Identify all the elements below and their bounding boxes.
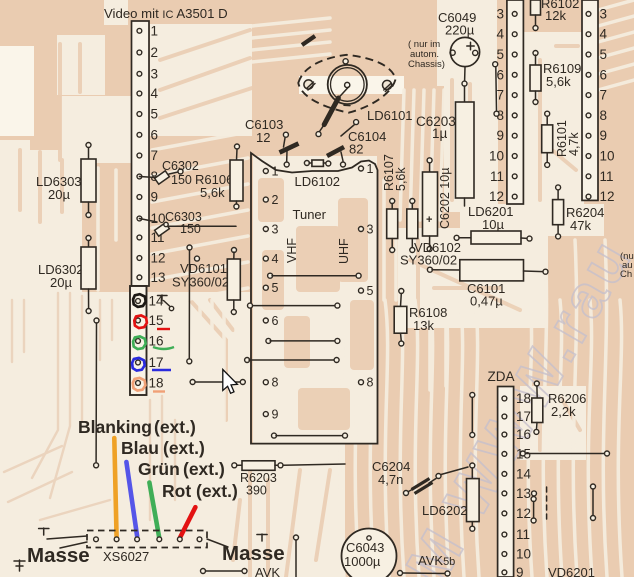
svg-text:18: 18 bbox=[516, 391, 531, 406]
svg-text:10: 10 bbox=[489, 149, 504, 164]
svg-text:SY360/02: SY360/02 bbox=[172, 275, 229, 290]
svg-text:3: 3 bbox=[272, 223, 279, 237]
svg-text:2: 2 bbox=[272, 193, 279, 207]
svg-text:3: 3 bbox=[367, 223, 374, 237]
svg-text:0,47µ: 0,47µ bbox=[470, 294, 503, 309]
svg-text:4: 4 bbox=[272, 252, 279, 266]
svg-text:Ch: Ch bbox=[620, 269, 632, 280]
svg-text:20µ: 20µ bbox=[50, 275, 72, 290]
svg-text:390: 390 bbox=[246, 484, 267, 498]
svg-text:13k: 13k bbox=[413, 318, 434, 333]
svg-text:ZDA: ZDA bbox=[488, 369, 515, 384]
svg-text:6: 6 bbox=[151, 127, 159, 142]
svg-text:9: 9 bbox=[600, 128, 608, 143]
svg-text:LD6202: LD6202 bbox=[422, 503, 468, 518]
svg-text:6: 6 bbox=[600, 67, 608, 82]
svg-text:13: 13 bbox=[151, 270, 166, 285]
svg-text:12: 12 bbox=[516, 506, 531, 521]
svg-text:3: 3 bbox=[496, 6, 504, 21]
svg-text:LD6102: LD6102 bbox=[295, 174, 341, 189]
svg-text:18: 18 bbox=[149, 376, 164, 391]
svg-text:11: 11 bbox=[600, 169, 614, 184]
svg-text:C6043: C6043 bbox=[346, 540, 384, 555]
svg-text:3: 3 bbox=[151, 66, 159, 81]
svg-text:Chassis): Chassis) bbox=[408, 59, 445, 70]
svg-text:Blanking: Blanking bbox=[78, 417, 152, 437]
svg-text:1µ: 1µ bbox=[432, 126, 448, 141]
svg-text:16: 16 bbox=[516, 427, 531, 442]
svg-text:4: 4 bbox=[151, 86, 159, 101]
svg-text:6: 6 bbox=[272, 314, 279, 328]
svg-text:20µ: 20µ bbox=[48, 187, 70, 202]
svg-text:3: 3 bbox=[600, 6, 608, 21]
svg-text:47k: 47k bbox=[570, 218, 591, 233]
svg-text:Grün: Grün bbox=[138, 459, 180, 479]
svg-text:Video mit IC A3501 D: Video mit IC A3501 D bbox=[104, 6, 228, 21]
svg-text:10: 10 bbox=[600, 149, 615, 164]
svg-text:10µ: 10µ bbox=[482, 217, 504, 232]
svg-text:11: 11 bbox=[516, 527, 530, 542]
svg-text:VD6201: VD6201 bbox=[548, 565, 595, 577]
svg-text:12: 12 bbox=[489, 189, 504, 204]
svg-text:9: 9 bbox=[496, 128, 504, 143]
svg-text:2,2k: 2,2k bbox=[551, 404, 576, 419]
svg-text:7: 7 bbox=[496, 88, 504, 103]
svg-text:13: 13 bbox=[516, 486, 531, 501]
svg-text:150: 150 bbox=[171, 173, 192, 187]
svg-text:5: 5 bbox=[272, 281, 279, 295]
svg-text:1000µ: 1000µ bbox=[344, 554, 381, 569]
svg-text:(ext.): (ext.) bbox=[163, 438, 205, 458]
svg-text:4,7k: 4,7k bbox=[567, 132, 581, 156]
svg-text:+: + bbox=[426, 214, 432, 226]
svg-text:16: 16 bbox=[149, 334, 164, 349]
svg-text:10: 10 bbox=[516, 547, 531, 562]
svg-text:220µ: 220µ bbox=[445, 23, 475, 38]
svg-text:AVK: AVK bbox=[255, 565, 280, 577]
svg-text:8: 8 bbox=[272, 376, 279, 390]
svg-text:12: 12 bbox=[600, 189, 615, 204]
svg-text:5: 5 bbox=[151, 107, 159, 122]
svg-text:Tuner: Tuner bbox=[293, 207, 327, 222]
svg-text:Masse: Masse bbox=[222, 542, 285, 565]
svg-text:AVK5b: AVK5b bbox=[418, 553, 455, 568]
svg-text:C6202 10µ: C6202 10µ bbox=[438, 168, 452, 229]
svg-text:9: 9 bbox=[272, 408, 279, 422]
svg-text:SY360/02: SY360/02 bbox=[400, 253, 457, 268]
svg-text:Masse: Masse bbox=[27, 544, 90, 567]
svg-text:5,6k: 5,6k bbox=[546, 74, 571, 89]
svg-text:8: 8 bbox=[600, 108, 608, 123]
svg-text:7: 7 bbox=[151, 148, 159, 163]
svg-text:(ext.): (ext.) bbox=[196, 481, 238, 501]
svg-text:VHF: VHF bbox=[285, 238, 299, 263]
svg-text:82: 82 bbox=[349, 142, 363, 157]
svg-text:5: 5 bbox=[600, 47, 608, 62]
svg-text:2: 2 bbox=[151, 45, 159, 60]
svg-text:5,6k: 5,6k bbox=[394, 167, 408, 191]
svg-text:8: 8 bbox=[367, 376, 374, 390]
svg-text:5,6k: 5,6k bbox=[200, 185, 225, 200]
svg-text:14: 14 bbox=[516, 466, 532, 481]
svg-text:Blau: Blau bbox=[121, 438, 159, 458]
svg-text:15: 15 bbox=[149, 313, 164, 328]
svg-text:(ext.): (ext.) bbox=[154, 417, 196, 437]
svg-text:UHF: UHF bbox=[337, 238, 351, 264]
svg-text:12: 12 bbox=[256, 130, 270, 145]
svg-text:4,7n: 4,7n bbox=[378, 472, 403, 487]
svg-text:6: 6 bbox=[496, 67, 504, 82]
svg-text:LD6101: LD6101 bbox=[367, 108, 413, 123]
svg-text:Rot: Rot bbox=[162, 481, 191, 501]
svg-text:17: 17 bbox=[516, 409, 531, 424]
svg-text:150: 150 bbox=[180, 222, 201, 236]
svg-text:4: 4 bbox=[496, 27, 504, 42]
svg-text:1: 1 bbox=[151, 23, 159, 38]
svg-text:1: 1 bbox=[367, 162, 374, 176]
svg-text:12: 12 bbox=[151, 251, 166, 266]
svg-text:1: 1 bbox=[272, 165, 279, 179]
svg-text:XS6027: XS6027 bbox=[103, 549, 149, 564]
svg-text:4: 4 bbox=[600, 27, 608, 42]
svg-text:C6302: C6302 bbox=[162, 159, 199, 173]
svg-text:(ext.): (ext.) bbox=[183, 459, 225, 479]
svg-text:12k: 12k bbox=[545, 8, 566, 23]
svg-text:9: 9 bbox=[151, 190, 159, 205]
svg-text:5: 5 bbox=[367, 284, 374, 298]
svg-text:11: 11 bbox=[490, 169, 504, 184]
svg-text:9: 9 bbox=[516, 565, 524, 577]
svg-text:5: 5 bbox=[496, 47, 504, 62]
svg-text:7: 7 bbox=[600, 88, 608, 103]
svg-text:17: 17 bbox=[149, 355, 164, 370]
